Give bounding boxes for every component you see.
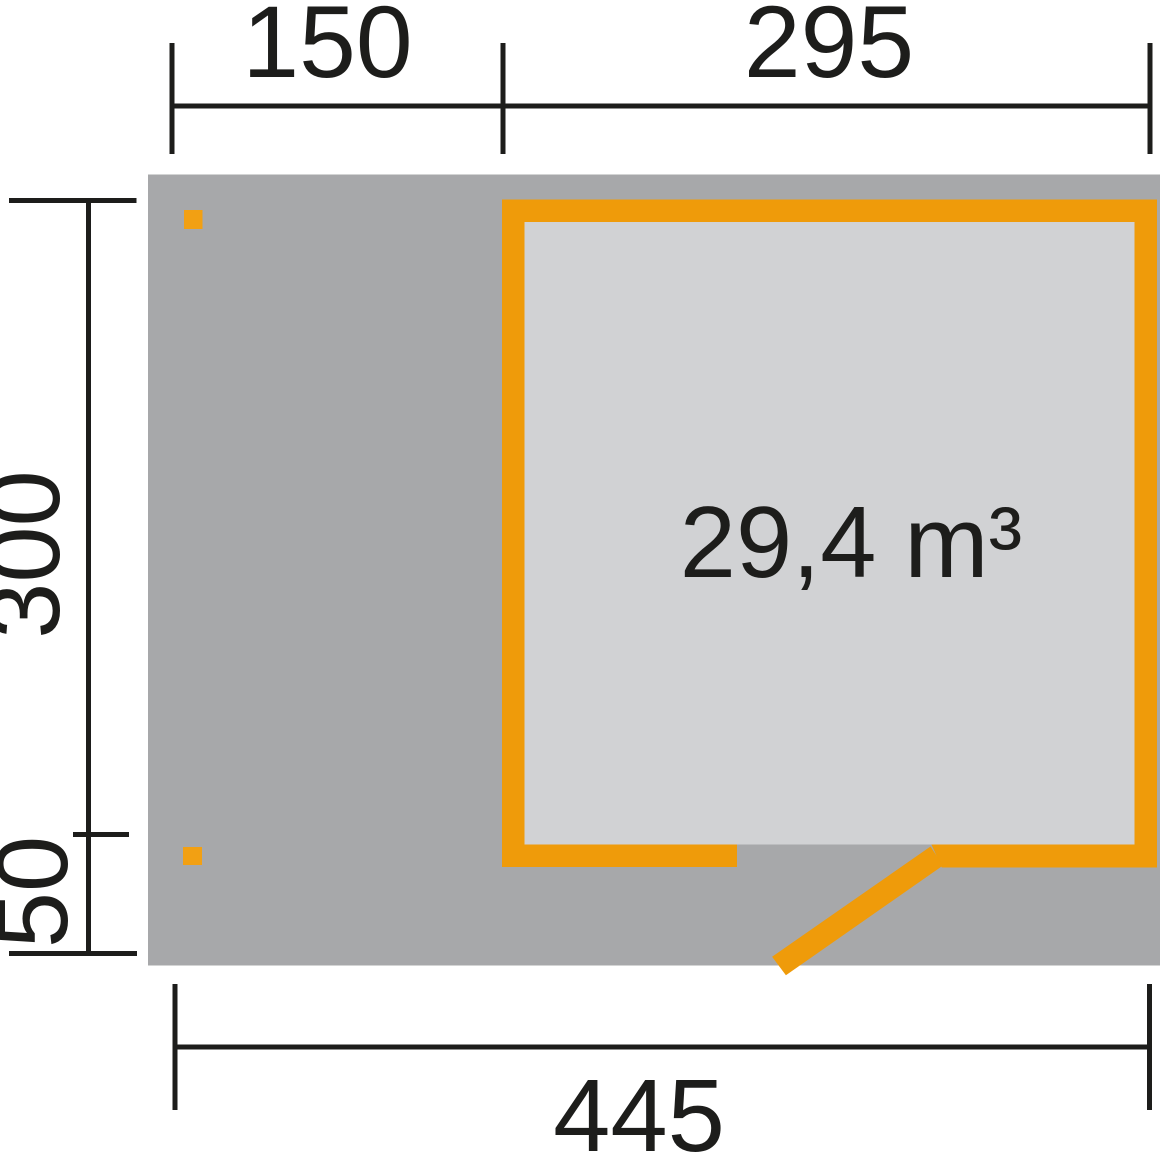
svg-text:150: 150 xyxy=(242,0,412,99)
svg-text:29,4 m³: 29,4 m³ xyxy=(680,487,1022,599)
svg-text:295: 295 xyxy=(744,0,914,99)
svg-text:50: 50 xyxy=(0,836,89,948)
svg-text:445: 445 xyxy=(553,1058,725,1160)
svg-text:300: 300 xyxy=(0,470,81,639)
